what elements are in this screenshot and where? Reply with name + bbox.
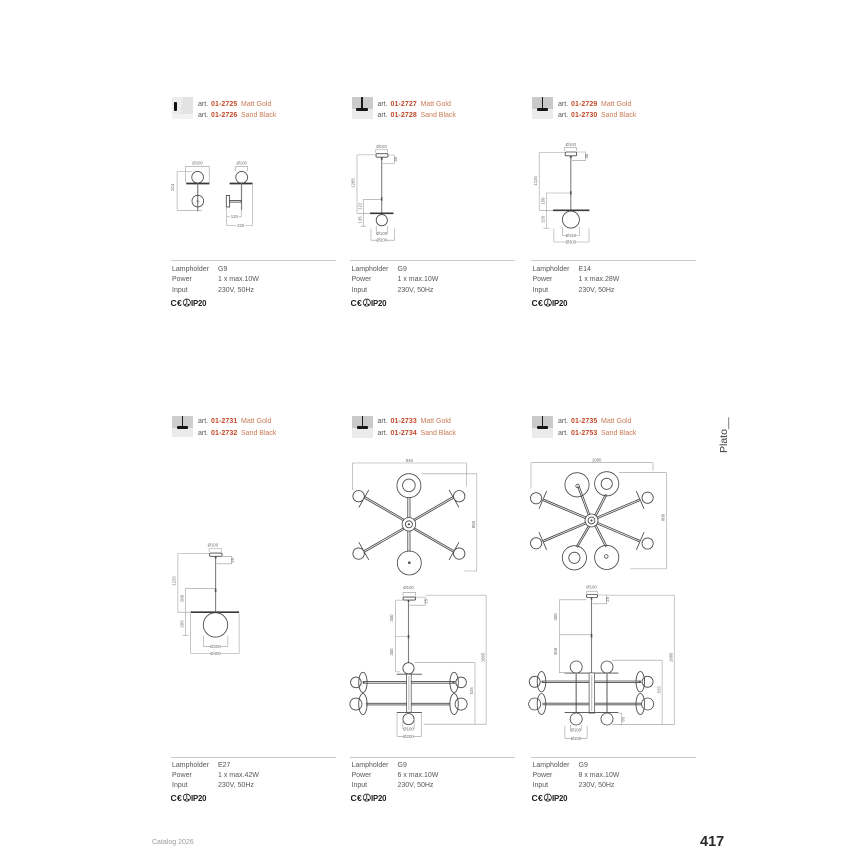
svg-text:225: 225: [237, 223, 245, 228]
svg-text:300: 300: [389, 648, 394, 656]
svg-text:850: 850: [471, 520, 476, 528]
svg-text:800: 800: [661, 513, 666, 521]
svg-text:Ø100: Ø100: [566, 142, 577, 147]
svg-text:Ø100: Ø100: [571, 728, 582, 733]
svg-text:525: 525: [656, 686, 661, 694]
svg-text:Ø200: Ø200: [403, 734, 414, 739]
svg-text:150: 150: [541, 197, 546, 205]
svg-text:324: 324: [170, 183, 175, 191]
svg-text:Ø150: Ø150: [566, 233, 577, 238]
svg-text:Ø100: Ø100: [236, 161, 247, 166]
svg-text:Ø100: Ø100: [403, 726, 414, 731]
svg-text:25: 25: [424, 598, 429, 603]
svg-text:1065: 1065: [480, 652, 485, 662]
svg-text:1225: 1225: [533, 176, 538, 186]
svg-text:30: 30: [584, 153, 589, 158]
svg-text:25: 25: [230, 557, 235, 562]
svg-text:Ø100: Ø100: [376, 144, 387, 149]
svg-text:1285: 1285: [351, 178, 356, 188]
svg-text:30: 30: [393, 156, 398, 161]
svg-text:200: 200: [179, 594, 184, 602]
svg-text:300: 300: [553, 613, 558, 621]
svg-text:525: 525: [469, 687, 474, 695]
svg-text:Ø100: Ø100: [586, 584, 597, 589]
svg-text:Ø100: Ø100: [377, 231, 388, 236]
svg-text:1085: 1085: [668, 652, 673, 662]
svg-text:1225: 1225: [171, 576, 176, 586]
svg-text:Ø200: Ø200: [571, 736, 582, 741]
svg-text:Ø400: Ø400: [210, 651, 221, 656]
svg-text:85: 85: [620, 716, 625, 721]
svg-text:155: 155: [541, 215, 546, 223]
svg-text:25: 25: [605, 596, 610, 601]
svg-text:205: 205: [179, 620, 184, 628]
svg-text:Ø300: Ø300: [566, 240, 577, 245]
svg-text:122: 122: [358, 202, 363, 210]
svg-text:945: 945: [406, 458, 414, 463]
svg-text:1080: 1080: [592, 458, 602, 463]
svg-text:Ø200: Ø200: [210, 644, 221, 649]
svg-text:Ø200: Ø200: [192, 161, 203, 166]
svg-text:308: 308: [553, 647, 558, 655]
svg-text:300: 300: [389, 614, 394, 622]
svg-text:125: 125: [231, 214, 239, 219]
svg-text:Ø100: Ø100: [208, 542, 219, 547]
svg-text:Ø200: Ø200: [377, 238, 388, 243]
svg-text:135: 135: [358, 216, 363, 224]
svg-text:Ø100: Ø100: [403, 585, 414, 590]
